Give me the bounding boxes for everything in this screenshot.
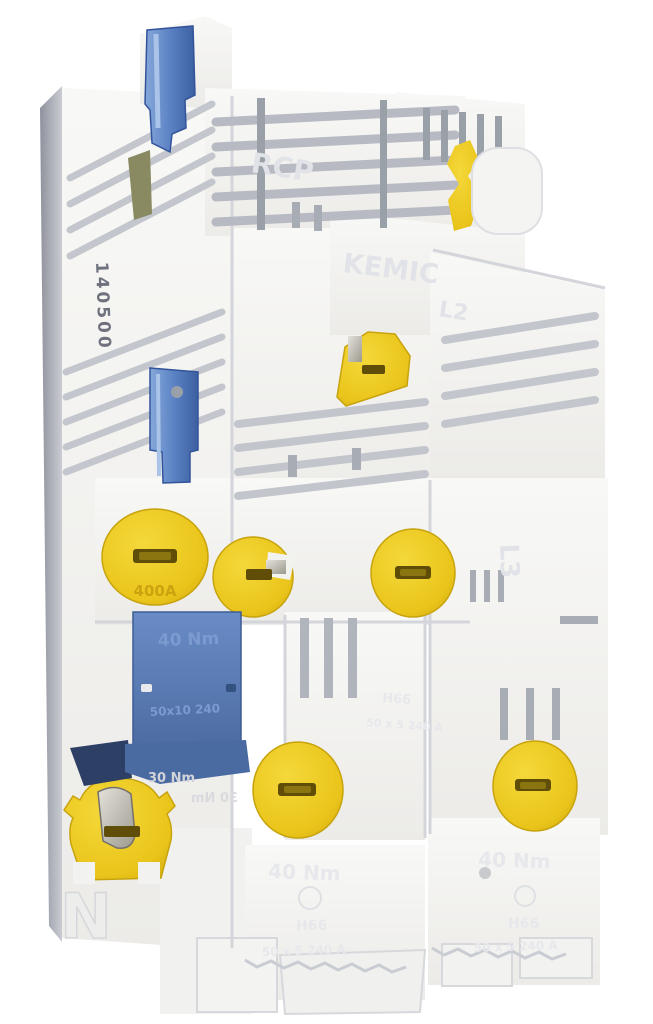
- lever-screw: [171, 386, 183, 398]
- top-right-cover: [472, 148, 542, 234]
- metal-hook: [98, 787, 135, 848]
- torque-30nm-mirrored: 30 Nm: [191, 791, 238, 806]
- cover-model-marking: H66: [508, 916, 539, 932]
- phase-l2-marking: L2: [437, 297, 470, 326]
- cover-rating-marking: 50 x 5 240 A: [262, 942, 347, 959]
- serial-stamp: 140500: [91, 261, 114, 351]
- screw-cap-bottom-right: [493, 741, 577, 831]
- blue-box-torque-marking: 40 Nm: [157, 629, 219, 651]
- cover-model-marking: H66: [296, 918, 327, 934]
- center-cover-slots: [300, 618, 357, 698]
- phase-l3-marking: L3: [493, 543, 524, 579]
- screw-cap-bottom-center: [253, 742, 343, 838]
- cover-rating-marking: 50 x 5 240 A: [474, 938, 559, 955]
- photo-stage: 400A: [0, 0, 653, 1024]
- screw-cap-left: 400A: [102, 509, 208, 605]
- torque-30nm-marking: 30 Nm: [148, 771, 195, 786]
- cover-torque-marking: 40 Nm: [478, 847, 551, 874]
- cover-torque-marking: 40 Nm: [268, 859, 341, 886]
- cover-model-marking: H66: [382, 691, 412, 708]
- screw-cap-right: [371, 529, 455, 617]
- device: 400A: [40, 16, 608, 1014]
- photo-canvas: 400A: [0, 0, 653, 1024]
- neutral-marking: N: [60, 880, 112, 953]
- cap-rating-marking: 400A: [134, 582, 177, 600]
